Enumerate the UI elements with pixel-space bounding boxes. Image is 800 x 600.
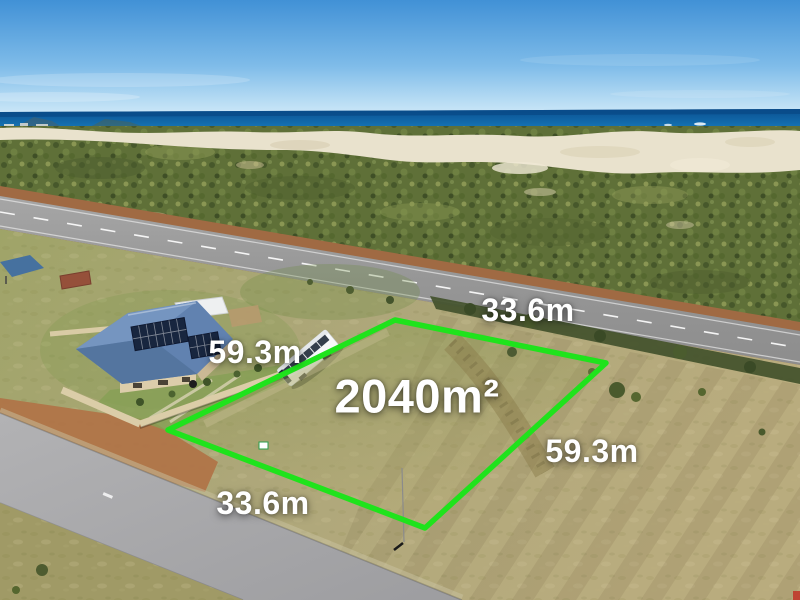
scene — [0, 0, 800, 600]
area-label: 2040m² — [335, 373, 500, 420]
reef-whitecap — [694, 122, 706, 125]
dimension-label-bottom: 33.6m — [216, 487, 309, 519]
for-sale-sign — [259, 442, 268, 449]
sky — [0, 0, 800, 120]
old-tyre — [189, 380, 197, 388]
dimension-label-left: 59.3m — [208, 336, 301, 368]
dimension-label-top: 33.6m — [481, 294, 574, 326]
red-object — [793, 591, 800, 600]
dimension-label-right: 59.3m — [545, 435, 638, 467]
aerial-property-photo: 2040m² 33.6m 59.3m 59.3m 33.6m — [0, 0, 800, 600]
